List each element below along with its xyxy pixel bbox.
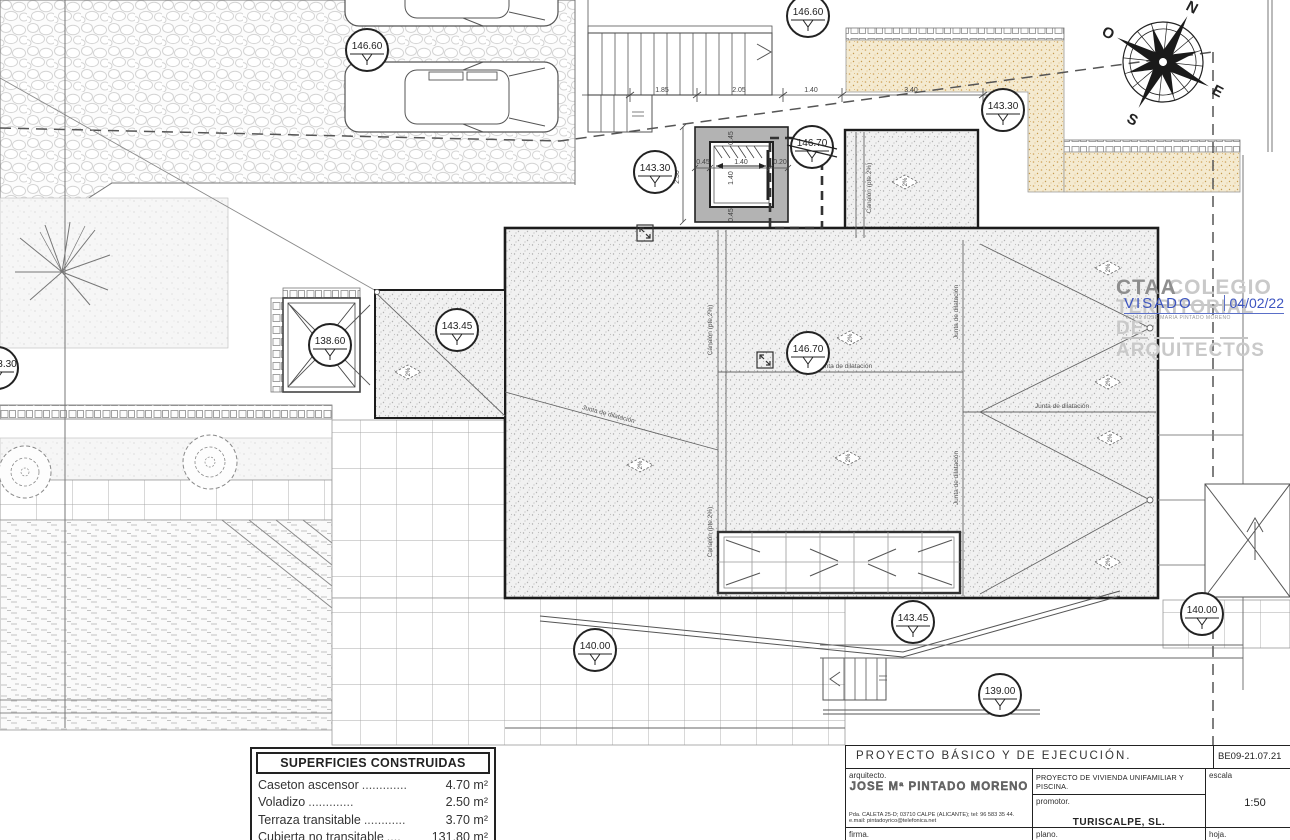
svg-text:143.30: 143.30 — [988, 101, 1019, 112]
elevation-marker: 146.70 — [787, 332, 829, 374]
pool-skylight — [718, 532, 960, 593]
areas-table: SUPERFICIES CONSTRUIDAS Caseton ascensor… — [250, 747, 496, 840]
svg-text:143.30: 143.30 — [640, 163, 671, 174]
plan-label: plano. — [1036, 830, 1058, 839]
promotor-name: TURISCALPE, SL. — [1033, 817, 1205, 828]
svg-text:Canalón (pte.2%): Canalón (pte.2%) — [707, 305, 714, 356]
parked-car — [345, 62, 558, 132]
bush — [0, 446, 51, 498]
title-block: PROYECTO BÁSICO Y DE EJECUCIÓN. BE09-21.… — [845, 745, 1290, 840]
elevation-marker-crossed: 146.70 — [787, 126, 837, 168]
terrace-tiles-left — [332, 420, 505, 598]
area-label: Caseton ascensor — [258, 778, 359, 792]
svg-text:2%: 2% — [848, 333, 854, 342]
dim-value: 1.85 — [655, 87, 669, 94]
scale-label: escala — [1209, 771, 1232, 780]
svg-text:2%: 2% — [1108, 433, 1114, 442]
elevation-marker: 139.00 — [979, 674, 1021, 716]
promotor-label: promotor. — [1036, 797, 1070, 806]
stone-wall-left — [0, 405, 332, 419]
area-label: Cubierta no transitable — [258, 830, 384, 840]
dots: ............. — [305, 795, 445, 809]
architect-label: arquitecto. — [849, 771, 886, 780]
dots: ............ — [361, 813, 446, 827]
svg-text:2%: 2% — [1106, 557, 1112, 566]
svg-text:1.40: 1.40 — [804, 87, 818, 94]
stone-wall-skylight-top — [283, 288, 360, 298]
svg-text:0.45: 0.45 — [728, 131, 735, 145]
svg-text:0.45: 0.45 — [696, 159, 710, 166]
svg-text:139.00: 139.00 — [985, 686, 1016, 697]
svg-text:1.40: 1.40 — [734, 159, 748, 166]
svg-text:1.40: 1.40 — [728, 171, 735, 185]
area-value: 2.50 m² — [446, 795, 488, 809]
elevation-marker: 143.30 — [634, 151, 676, 193]
bush — [183, 435, 237, 489]
table-row: Caseton ascensor ............. 4.70 m² — [256, 774, 490, 792]
svg-text:0.45: 0.45 — [728, 208, 735, 222]
svg-text:Canalón (pte.2%): Canalón (pte.2%) — [707, 507, 714, 558]
svg-text:143.45: 143.45 — [442, 321, 473, 332]
lawn-area — [0, 520, 332, 730]
svg-text:2%: 2% — [1106, 263, 1112, 272]
svg-text:Junta de dilatación: Junta de dilatación — [953, 285, 960, 340]
compass-rose: N S E O — [1068, 0, 1255, 159]
project-title: PROYECTO BÁSICO Y DE EJECUCIÓN. — [846, 746, 1213, 768]
svg-text:146.60: 146.60 — [352, 41, 383, 52]
svg-text:0.20: 0.20 — [773, 159, 787, 166]
table-row: Terraza transitable ............ 3.70 m² — [256, 809, 490, 827]
dots: ............. — [359, 778, 446, 792]
architect-name: JOSE Mª PINTADO MORENO — [846, 781, 1032, 793]
svg-text:3.40: 3.40 — [904, 87, 918, 94]
sheet-label: hoja. — [1209, 830, 1226, 839]
slope-label: 2% — [903, 177, 909, 186]
garden-bed-upper — [0, 198, 228, 348]
svg-text:2%: 2% — [638, 460, 644, 469]
tile-path — [0, 480, 332, 520]
planter-wall-top — [846, 28, 1064, 40]
elevation-marker: 140.00 — [1181, 593, 1223, 635]
table-row: Cubierta no transitable .... 131.80 m² — [256, 827, 490, 840]
compass-east: E — [1209, 82, 1226, 102]
svg-text:143.45: 143.45 — [898, 613, 929, 624]
svg-text:2%: 2% — [846, 453, 852, 462]
scale-value: 1:50 — [1206, 797, 1290, 809]
area-label: Voladizo — [258, 795, 305, 809]
area-value: 3.70 m² — [446, 813, 488, 827]
canalon-label: Canalón (pte.2%) — [866, 163, 873, 214]
dots: .... — [384, 830, 432, 840]
parked-car-top — [345, 0, 558, 26]
project-code: BE09-21.07.21 — [1213, 746, 1290, 768]
site-plan-svg: 2% 2% 2% 2% 2% 2% 2% 2% 2% Junta de dila… — [0, 0, 1290, 840]
compass-west: O — [1099, 23, 1118, 44]
elevation-marker: 146.60 — [346, 29, 388, 71]
compass-south: S — [1124, 110, 1141, 130]
compass-north: N — [1183, 0, 1201, 18]
areas-table-title: SUPERFICIES CONSTRUIDAS — [256, 752, 490, 774]
svg-text:140.00: 140.00 — [580, 641, 611, 652]
svg-text:2.05: 2.05 — [732, 87, 746, 94]
svg-text:2%: 2% — [406, 367, 412, 376]
svg-text:3.30: 3.30 — [0, 359, 17, 370]
pavilion-roof — [1205, 484, 1290, 597]
stone-wall-skylight-side — [271, 298, 283, 392]
area-label: Terraza transitable — [258, 813, 361, 827]
area-value: 4.70 m² — [446, 778, 488, 792]
elevation-marker: 146.60 — [787, 0, 829, 37]
svg-text:138.60: 138.60 — [315, 336, 346, 347]
table-row: Voladizo ............. 2.50 m² — [256, 792, 490, 810]
svg-text:Junta de dilatación: Junta de dilatación — [953, 451, 960, 506]
architect-email: e.mail: pintadoyrico@telefonica.net — [849, 818, 936, 824]
elevation-marker: 143.30 — [982, 89, 1024, 131]
elevation-marker: 143.45 — [436, 309, 478, 351]
svg-text:140.00: 140.00 — [1187, 605, 1218, 616]
area-value: 131.80 m² — [432, 830, 488, 840]
elevation-marker: 143.45 — [892, 601, 934, 643]
elevation-marker-clipped: 3.30 — [0, 347, 18, 389]
elevator-shaft — [695, 127, 788, 222]
svg-text:2%: 2% — [1106, 377, 1112, 386]
svg-text:146.70: 146.70 — [793, 344, 824, 355]
terrace-tiles-bottom — [332, 598, 845, 745]
elevation-marker: 140.00 — [574, 629, 616, 671]
svg-text:Junta de dilatación: Junta de dilatación — [1035, 403, 1090, 410]
signature-label: firma. — [849, 830, 869, 839]
work-title: PROYECTO DE VIVIENDA UNIFAMILIAR Y PISCI… — [1033, 769, 1205, 795]
svg-text:146.60: 146.60 — [793, 7, 824, 18]
drawing-sheet: 2% 2% 2% 2% 2% 2% 2% 2% 2% Junta de dila… — [0, 0, 1290, 840]
